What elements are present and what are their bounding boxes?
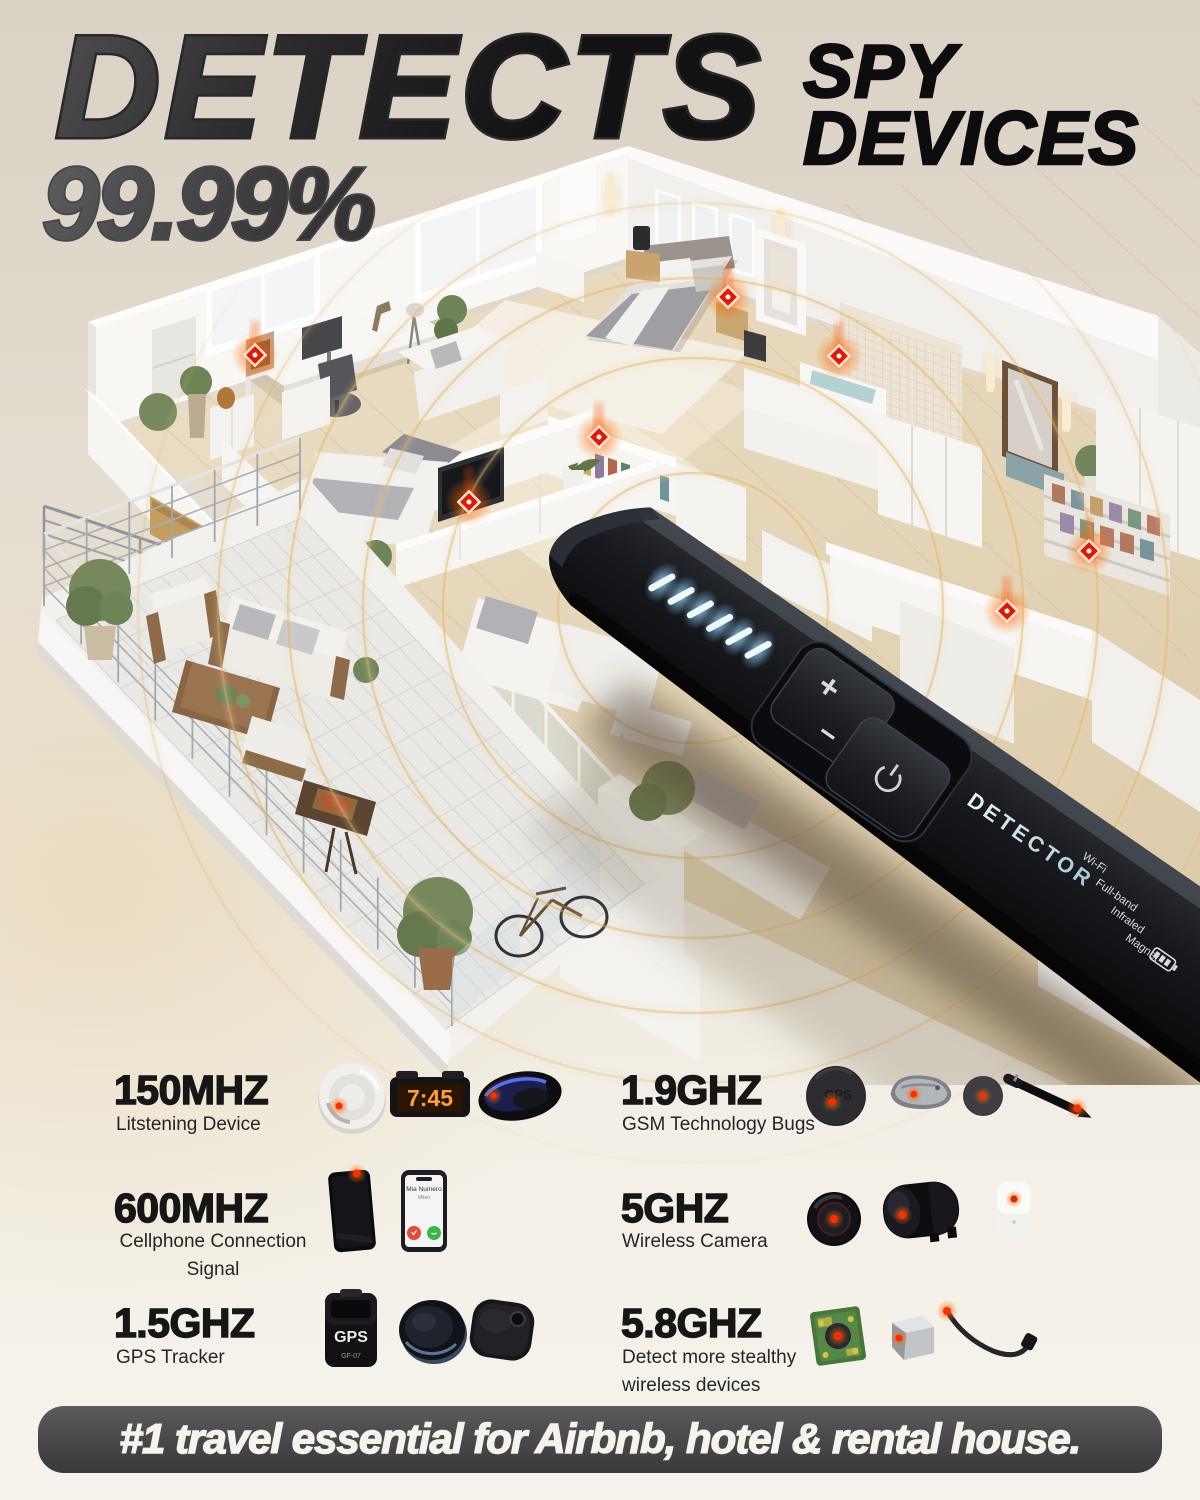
svg-text:7:45: 7:45 — [407, 1085, 453, 1111]
svg-text:GF-07: GF-07 — [341, 1353, 361, 1360]
svg-text:Milan: Milan — [418, 1195, 430, 1201]
svg-text:Mia Numero: Mia Numero — [406, 1186, 442, 1193]
svg-text:GPS: GPS — [334, 1329, 368, 1346]
